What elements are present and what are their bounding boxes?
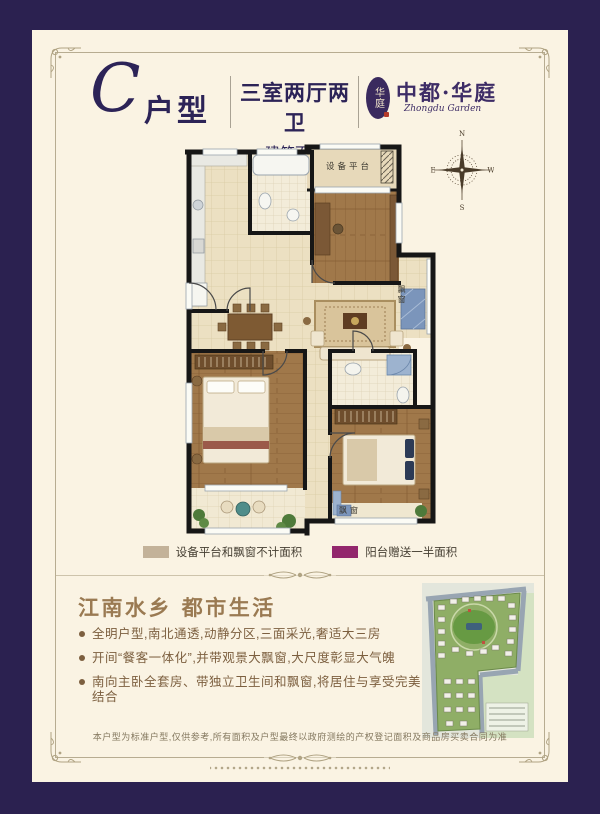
legend-label: 阳台赠送一半面积 bbox=[365, 544, 457, 560]
corner-ornament-icon bbox=[48, 45, 82, 79]
unit-type-label: 户型 bbox=[144, 86, 210, 130]
floor-plan: 设备平台 飘窗 飘窗 bbox=[185, 143, 437, 537]
selling-point: 全明户型,南北通透,动静分区,三面采光,奢适大三房 bbox=[78, 627, 426, 642]
dot-row-ornament bbox=[210, 766, 390, 770]
disclaimer-text: 本户型为标准户型,仅供参考,所有面积及户型最终以政府测绘的产权登记面积及商品房买… bbox=[32, 730, 568, 743]
legend-item-platform: 设备平台和飘窗不计面积 bbox=[143, 544, 303, 560]
room-spec: 三室两厅两卫 bbox=[236, 77, 354, 137]
site-plan bbox=[422, 583, 534, 738]
seal-stamp-icon bbox=[384, 112, 389, 117]
bay-window-side-label: 飘窗 bbox=[396, 285, 407, 305]
selling-point: 南向主卧全套房、带独立卫生间和飘窗,将居住与享受完美结合 bbox=[78, 675, 426, 705]
compass-south-label: S bbox=[460, 204, 465, 212]
equipment-platform-label: 设备平台 bbox=[311, 160, 387, 172]
brand-name-cn: 中都·华庭 bbox=[396, 77, 497, 107]
bullet-icon bbox=[79, 655, 85, 661]
flourish-icon bbox=[264, 568, 336, 582]
section-title: 江南水乡 都市生活 bbox=[78, 592, 276, 622]
bullet-icon bbox=[79, 631, 85, 637]
legend-item-balcony: 阳台赠送一半面积 bbox=[332, 544, 457, 560]
legend-swatch-magenta bbox=[332, 546, 358, 558]
bullet-icon bbox=[79, 679, 85, 685]
poster-card: C 户型 三室两厅两卫 建筑面积约:108m² 华庭 中都·华庭 Zhongdu… bbox=[32, 30, 568, 782]
unit-type-letter: C bbox=[90, 56, 141, 122]
corner-ornament-icon bbox=[518, 45, 552, 79]
poster: C 户型 三室两厅两卫 建筑面积约:108m² 华庭 中都·华庭 Zhongdu… bbox=[0, 0, 600, 814]
plan-legend: 设备平台和飘窗不计面积 阳台赠送一半面积 bbox=[32, 544, 568, 560]
legend-label: 设备平台和飘窗不计面积 bbox=[176, 544, 303, 560]
selling-point: 开间“餐客一体化”,并带观景大飘窗,大尺度彰显大气魄 bbox=[78, 651, 426, 666]
compass-north-label: N bbox=[459, 130, 465, 138]
header-divider bbox=[230, 76, 231, 128]
header-divider bbox=[358, 76, 359, 128]
flourish-icon bbox=[264, 751, 336, 765]
floor-plan-drawing bbox=[185, 143, 437, 537]
compass-west-label: W bbox=[487, 167, 494, 175]
selling-points: 全明户型,南北通透,动静分区,三面采光,奢适大三房 开间“餐客一体化”,并带观景… bbox=[78, 627, 426, 714]
compass-icon: N S E W bbox=[430, 128, 494, 212]
legend-swatch-tan bbox=[143, 546, 169, 558]
brand-name-en: Zhongdu Garden bbox=[404, 104, 481, 114]
bay-window-bottom-label: 飘窗 bbox=[333, 505, 367, 516]
